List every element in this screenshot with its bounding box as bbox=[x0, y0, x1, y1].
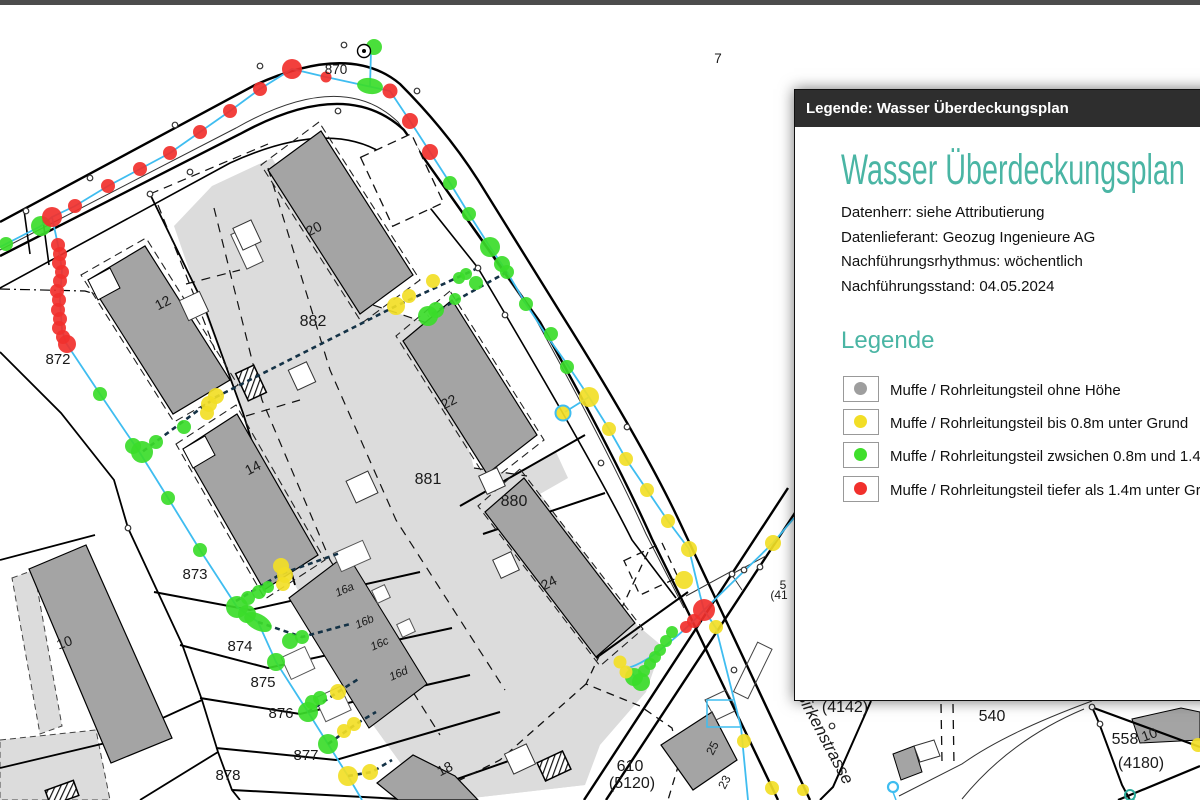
svg-text:(41: (41 bbox=[770, 588, 788, 602]
svg-text:(5120): (5120) bbox=[609, 775, 655, 792]
svg-text:874: 874 bbox=[227, 638, 252, 655]
svg-text:881: 881 bbox=[415, 471, 442, 488]
svg-text:882: 882 bbox=[300, 313, 327, 330]
svg-text:870: 870 bbox=[325, 62, 348, 77]
svg-text:610: 610 bbox=[617, 758, 644, 775]
svg-text:7: 7 bbox=[714, 51, 722, 66]
svg-text:880: 880 bbox=[501, 493, 528, 510]
svg-text:876: 876 bbox=[268, 705, 293, 722]
svg-text:873: 873 bbox=[182, 566, 207, 583]
svg-text:558: 558 bbox=[1112, 731, 1139, 748]
svg-text:872: 872 bbox=[45, 351, 70, 368]
svg-text:(4142): (4142) bbox=[822, 699, 868, 716]
svg-text:878: 878 bbox=[215, 767, 240, 784]
svg-text:877: 877 bbox=[293, 747, 318, 764]
svg-text:(4180): (4180) bbox=[1118, 755, 1164, 772]
svg-text:540: 540 bbox=[979, 708, 1006, 725]
svg-text:875: 875 bbox=[250, 674, 275, 691]
